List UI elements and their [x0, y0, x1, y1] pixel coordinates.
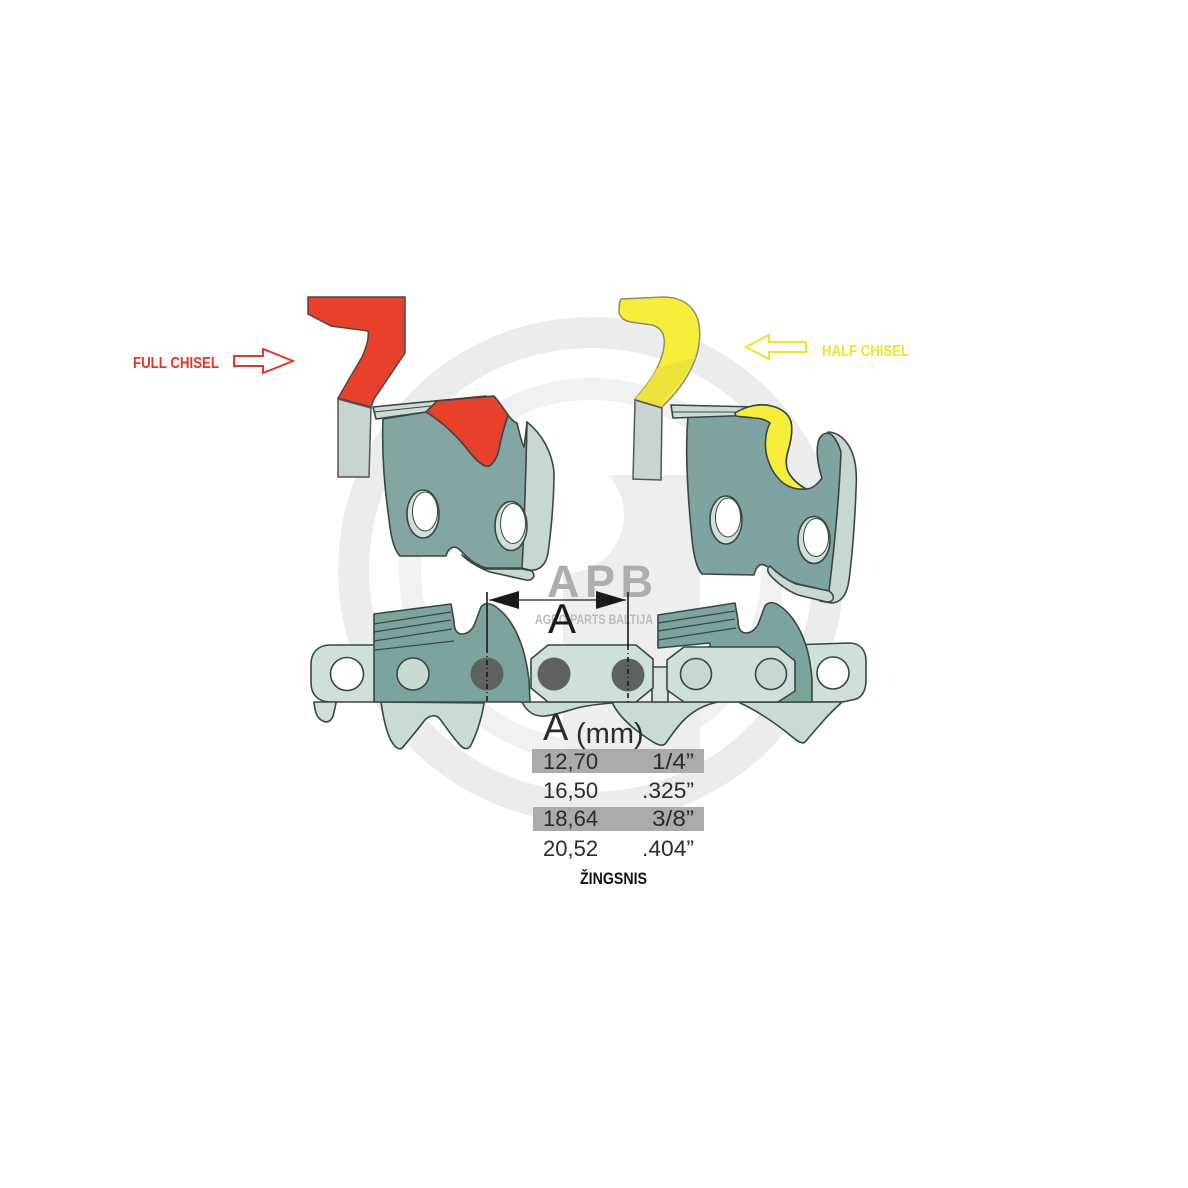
svg-text:HALF CHISEL: HALF CHISEL [822, 343, 909, 360]
svg-text:18,64: 18,64 [543, 806, 598, 831]
svg-text:1/4”: 1/4” [652, 749, 694, 774]
svg-text:A: A [548, 595, 576, 642]
svg-text:.325”: .325” [642, 778, 694, 803]
svg-text:(mm): (mm) [576, 718, 644, 750]
svg-text:3/8”: 3/8” [652, 806, 694, 831]
svg-text:FULL CHISEL: FULL CHISEL [133, 355, 219, 372]
svg-text:ŽINGSNIS: ŽINGSNIS [580, 869, 647, 888]
svg-text:12,70: 12,70 [543, 749, 598, 774]
svg-text:16,50: 16,50 [543, 778, 598, 803]
svg-text:20,52: 20,52 [543, 836, 598, 861]
svg-text:A: A [543, 707, 569, 749]
svg-text:.404”: .404” [642, 836, 694, 861]
